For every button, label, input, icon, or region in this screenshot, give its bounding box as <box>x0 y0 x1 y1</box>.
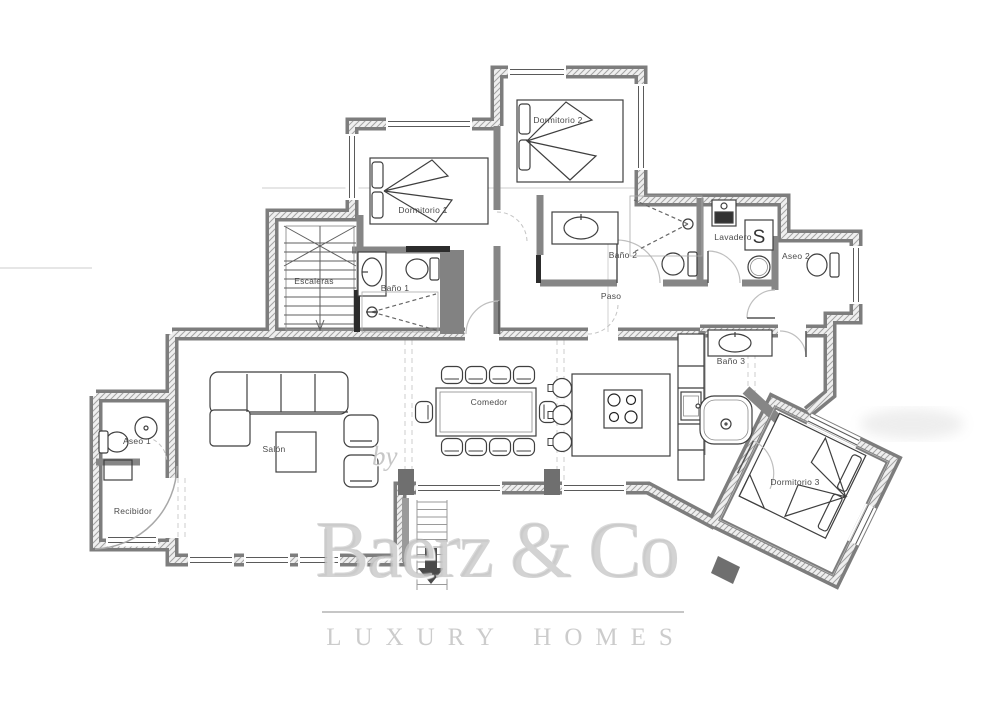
dining-table-icon <box>436 388 536 436</box>
armchair-icon <box>344 455 378 487</box>
chair-icon <box>490 439 511 456</box>
smudge <box>860 409 964 439</box>
bed-icon-dormitorio2 <box>517 100 623 182</box>
chair-icon <box>466 439 487 456</box>
stool-icon <box>548 379 572 398</box>
room-label-lavadero: Lavadero <box>714 232 751 242</box>
chimney-block <box>711 556 740 584</box>
toilet-icon-bano1 <box>406 258 439 280</box>
chair-icon <box>442 367 463 384</box>
floor-plan-drawing: S Dormitorio 1 Dormitorio 2 Dormitorio 3… <box>0 0 1000 707</box>
appliance-icon-lavadero <box>712 200 736 226</box>
room-label-comedor: Comedor <box>471 397 508 407</box>
chair-icon <box>442 439 463 456</box>
column-pier <box>544 469 560 495</box>
room-label-bano3: Baño 3 <box>717 356 745 366</box>
shower-icon-bano1 <box>362 292 438 332</box>
column-pier <box>398 469 414 495</box>
room-label-escaleras: Escaleras <box>294 276 334 286</box>
chair-icon <box>416 402 433 423</box>
down-arrow-icon <box>418 548 444 584</box>
room-label-dormitorio2: Dormitorio 2 <box>533 115 582 125</box>
chair-icon <box>490 367 511 384</box>
wall-chunk <box>440 250 464 334</box>
floor-plan-page: S Dormitorio 1 Dormitorio 2 Dormitorio 3… <box>0 0 1000 707</box>
water-heater-icon: S <box>753 227 766 248</box>
room-label-aseo1: Aseo 1 <box>123 436 151 446</box>
kitchen-island <box>548 374 670 456</box>
room-label-dormitorio1: Dormitorio 1 <box>398 205 447 215</box>
cooktop-icon <box>604 390 642 428</box>
laundry-basin-icon <box>748 256 770 278</box>
toilet-icon-aseo2 <box>807 253 839 277</box>
room-label-recibidor: Recibidor <box>114 506 152 516</box>
room-label-aseo2: Aseo 2 <box>782 251 810 261</box>
room-label-bano2: Baño 2 <box>609 250 637 260</box>
armchair-icon <box>344 415 378 447</box>
exterior-steps <box>402 498 447 590</box>
stool-icon <box>548 433 572 452</box>
room-label-salon: Salón <box>263 444 286 454</box>
room-label-paso: Paso <box>601 291 621 301</box>
room-label-dormitorio3: Dormitorio 3 <box>770 477 819 487</box>
vanity-sink-icon-bano2 <box>552 212 618 244</box>
bathtub-icon-bano3 <box>700 396 752 444</box>
room-label-bano1: Baño 1 <box>381 283 409 293</box>
chair-icon <box>466 367 487 384</box>
vanity-sink-icon-bano3 <box>708 330 772 356</box>
chair-icon <box>514 367 535 384</box>
chair-icon <box>514 439 535 456</box>
